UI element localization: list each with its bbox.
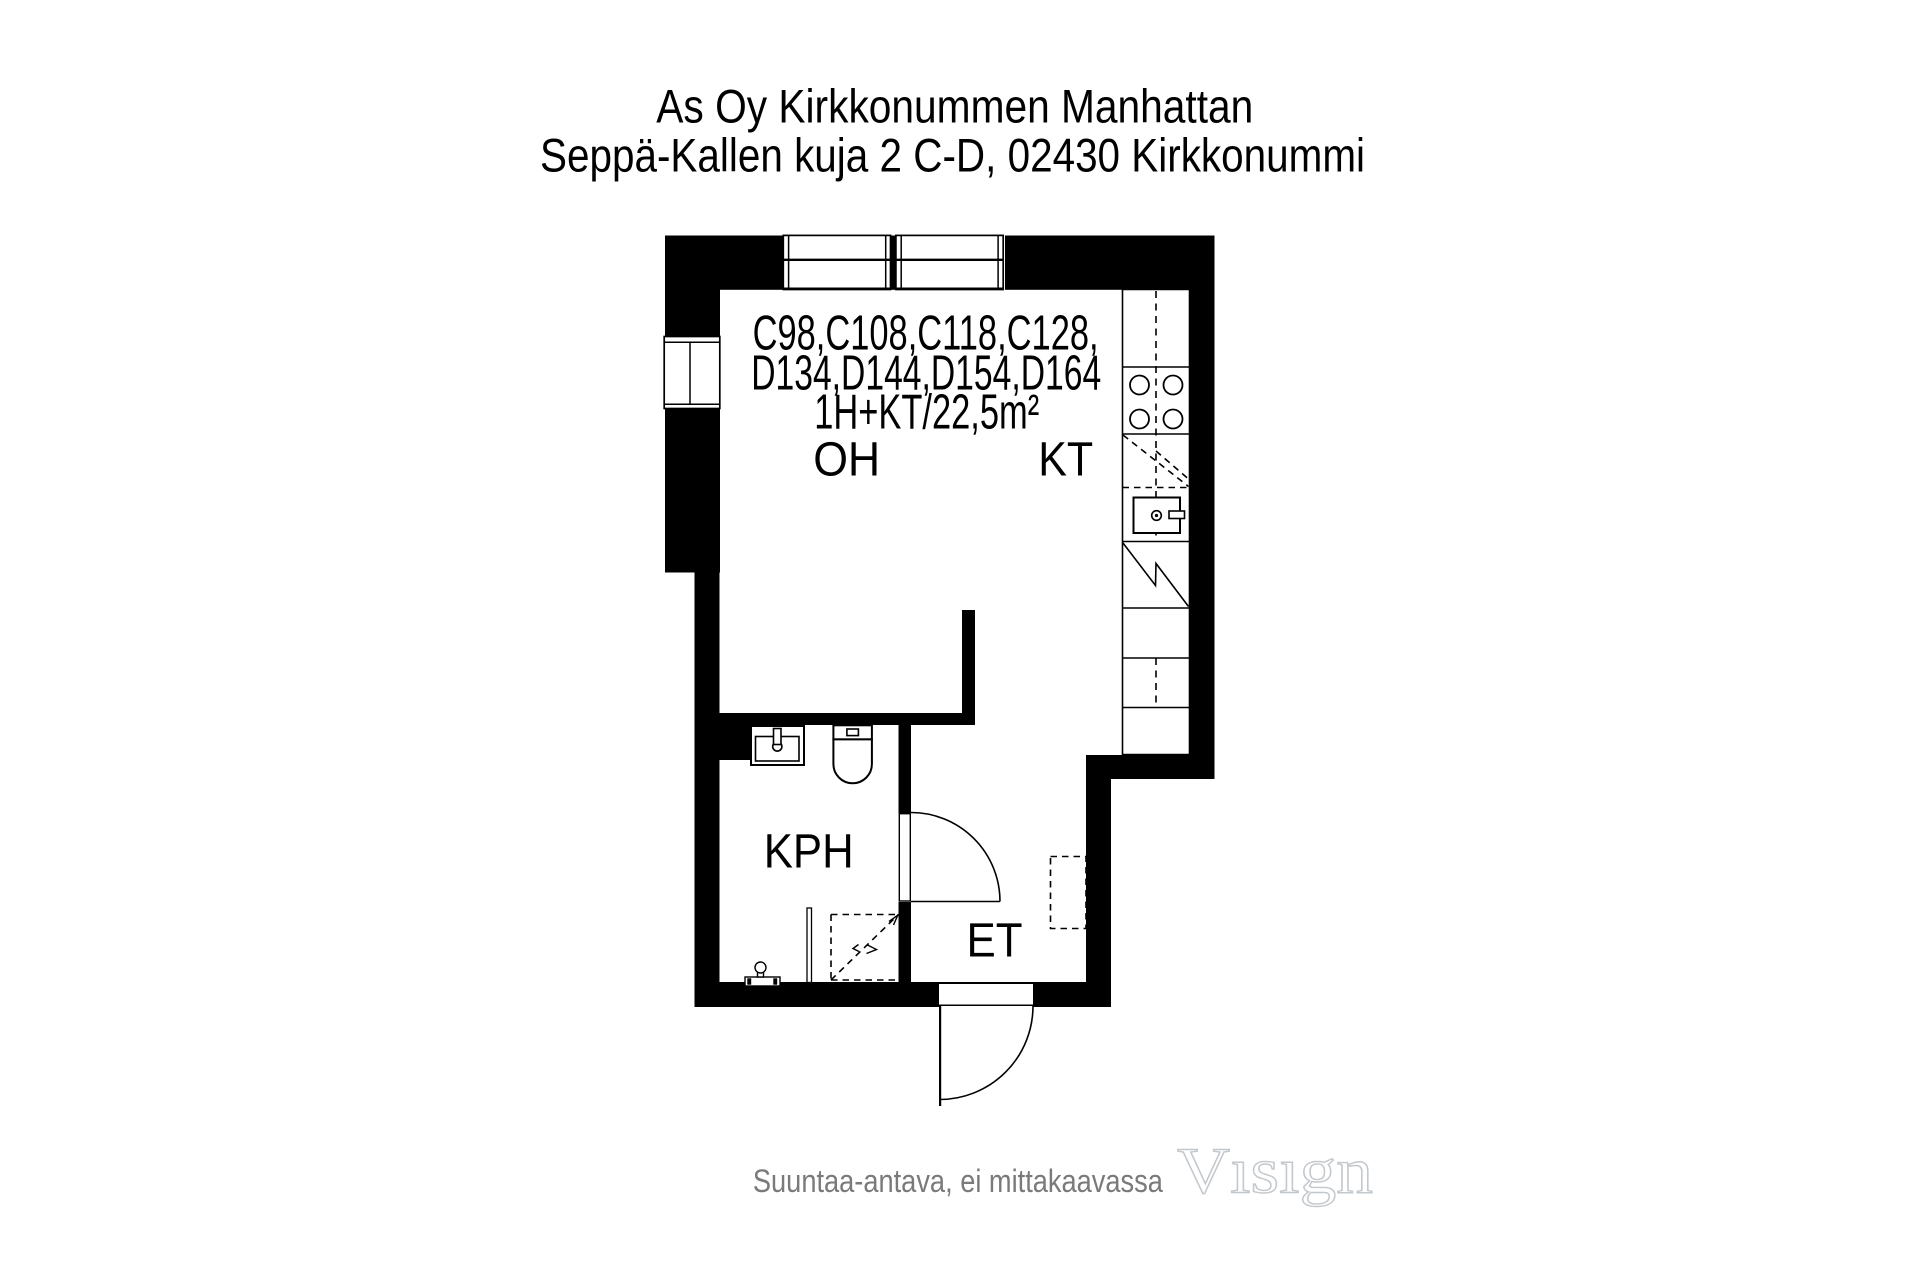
svg-text:ET: ET	[967, 915, 1023, 968]
svg-text:1H+KT/22,5m²: 1H+KT/22,5m²	[814, 385, 1039, 439]
svg-text:Vısıgn: Vısıgn	[1177, 1135, 1373, 1208]
svg-text:As Oy Kirkkonummen Manhattan: As Oy Kirkkonummen Manhattan	[656, 79, 1253, 132]
svg-text:OH: OH	[813, 434, 880, 487]
svg-text:KPH: KPH	[764, 826, 854, 879]
svg-text:KT: KT	[1038, 434, 1093, 487]
svg-text:Suuntaa-antava, ei mittakaavas: Suuntaa-antava, ei mittakaavassa	[753, 1163, 1163, 1199]
svg-text:Seppä-Kallen kuja 2 C-D, 02430: Seppä-Kallen kuja 2 C-D, 02430 Kirkkonum…	[540, 129, 1365, 182]
